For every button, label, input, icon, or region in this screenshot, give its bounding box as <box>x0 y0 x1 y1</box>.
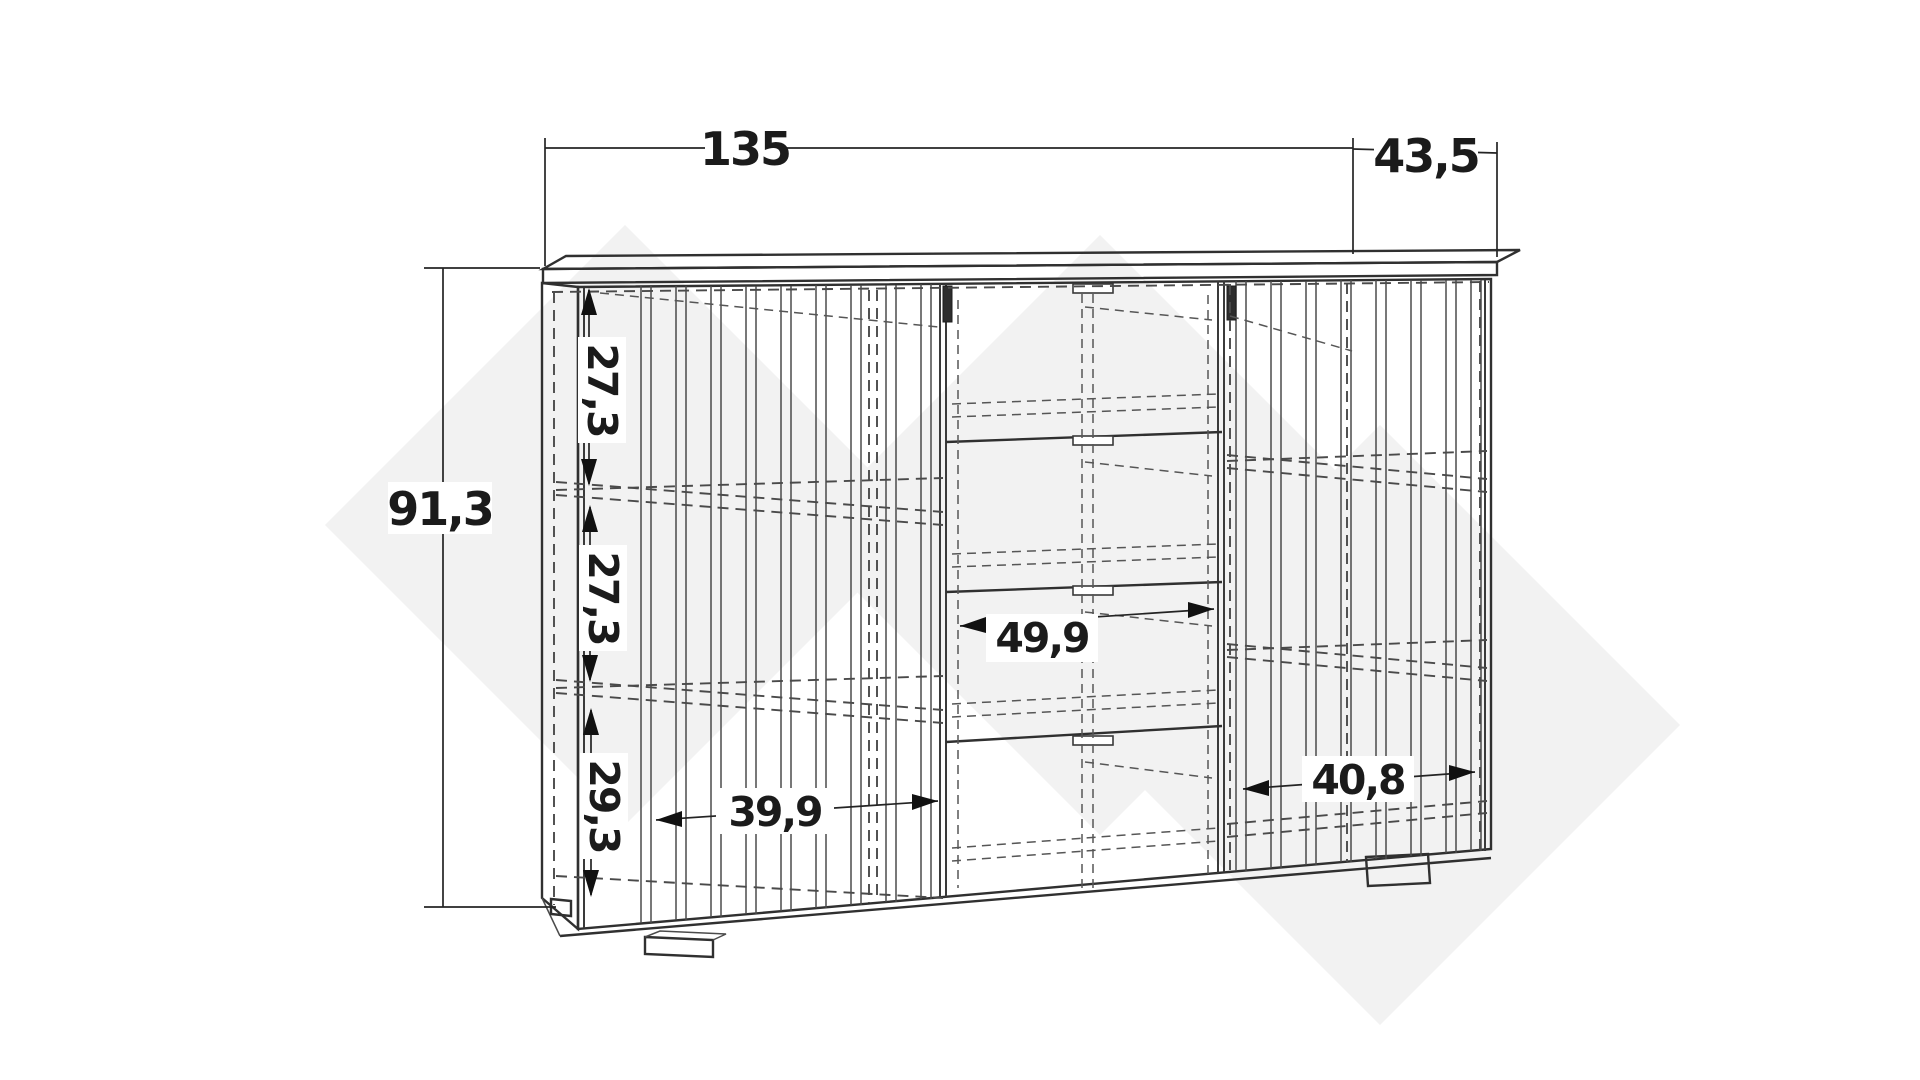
dim-center-compartment-label: 49,9 <box>995 614 1088 662</box>
dim-total-height-label: 91,3 <box>387 482 493 536</box>
dim-depth-label: 43,5 <box>1373 129 1479 183</box>
dim-total-width-label: 135 <box>700 122 790 176</box>
dim-upper-section-label: 27,3 <box>578 343 626 436</box>
top-panel <box>543 250 1520 283</box>
leg-left <box>645 937 713 957</box>
dim-lower-section-label: 29,3 <box>580 759 628 852</box>
hinge-left-door <box>943 286 952 322</box>
dim-middle-section-label: 27,3 <box>579 551 627 644</box>
drawing-canvas: 135 43,5 91,3 27,3 27,3 <box>0 0 1920 1080</box>
dim-left-compartment-label: 39,9 <box>728 788 821 836</box>
furniture-dimension-diagram: 135 43,5 91,3 27,3 27,3 <box>0 0 1920 1080</box>
dim-right-compartment-label: 40,8 <box>1311 756 1404 804</box>
dim-total-width: 135 <box>545 122 1353 266</box>
dim-depth: 43,5 <box>1353 128 1497 257</box>
hinge-right-door <box>1227 286 1236 320</box>
